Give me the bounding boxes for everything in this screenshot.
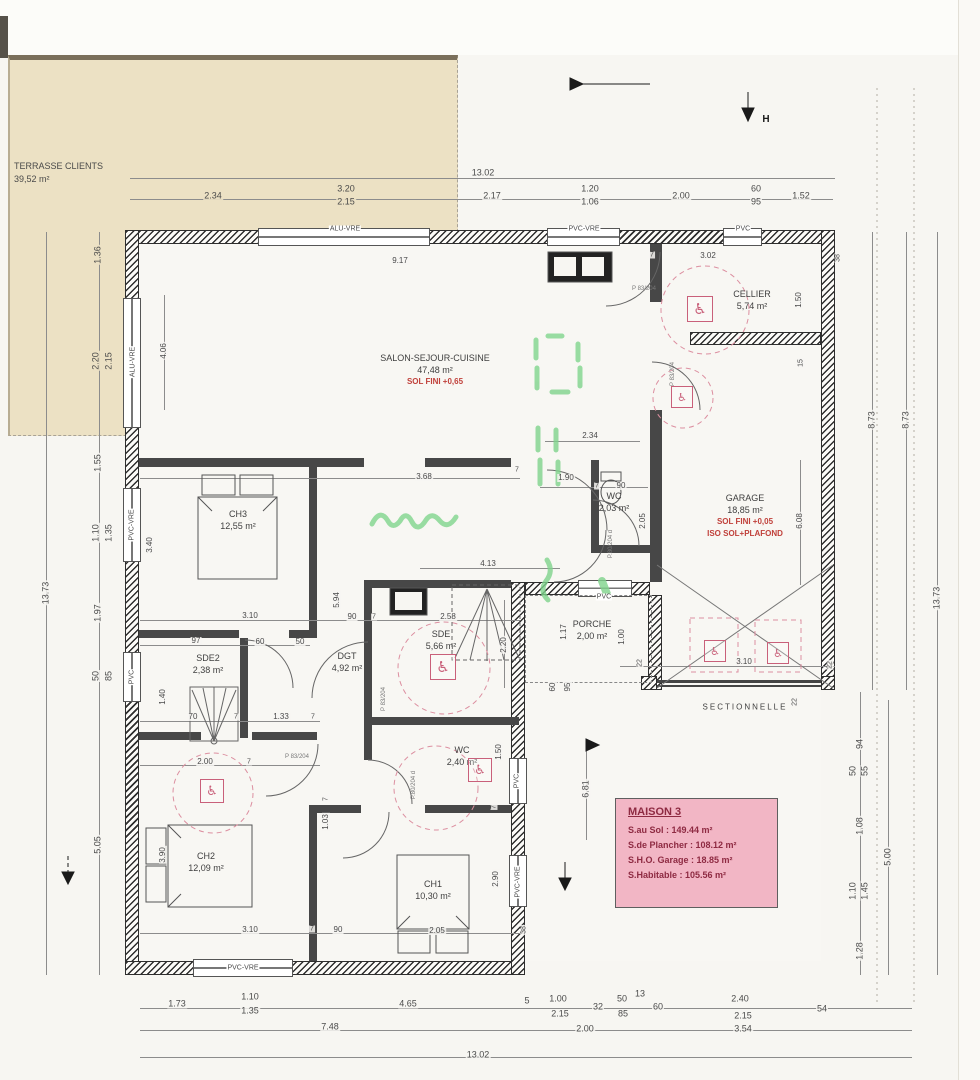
dimension-label: 4.65	[398, 1000, 418, 1009]
dimension-label: 2.05	[428, 927, 446, 935]
dimension-label: 38	[835, 253, 842, 263]
dimension-label: 1.28	[856, 941, 865, 961]
dimension-label: 3.10	[735, 658, 753, 666]
dimension-label: 2.00	[671, 192, 691, 201]
dimension-label: 3.10	[241, 926, 259, 934]
dimension-label: 95	[564, 682, 572, 693]
dimension-label: 1.40	[159, 688, 167, 706]
dimension-label: 7	[310, 714, 316, 721]
dimension-label: 7.48	[320, 1023, 340, 1032]
dimension-label: 5.00	[884, 847, 893, 867]
dimension-label: 50	[849, 765, 858, 777]
dimension-line	[620, 666, 835, 667]
wheelchair-accessibility-icon: ♿	[468, 758, 492, 782]
dimension-label: 3.68	[415, 473, 433, 481]
dimension-label: 1.35	[240, 1007, 260, 1016]
dimension-label: 97	[191, 637, 202, 645]
room-area: 2,03 m²	[599, 502, 630, 514]
window-type-label: PVC-VRE	[515, 865, 522, 898]
window-type-label: ALU-VRE	[130, 346, 137, 378]
room-note: SOL FINI +0,65	[380, 376, 490, 388]
room-name: SALON-SEJOUR-CUISINE	[380, 352, 490, 364]
window-type-label: PVC	[514, 773, 521, 789]
dimension-label: 1.55	[94, 453, 103, 473]
dimension-label: 1.33	[272, 713, 290, 721]
wheelchair-accessibility-icon: ♿	[687, 296, 713, 322]
terrace-label: TERRASSE CLIENTS 39,52 m²	[14, 160, 103, 186]
dimension-label: 50	[616, 995, 628, 1004]
dimension-label: 7	[309, 926, 315, 933]
door-reference-label: P.80/204 d	[608, 529, 614, 559]
dimension-label: 70	[188, 713, 199, 721]
room-label-ch3: CH312,55 m²	[220, 508, 256, 532]
room-label-garage: GARAGE18,85 m²SOL FINI +0,05ISO SOL+PLAF…	[707, 492, 783, 540]
dimension-label: 2.00	[196, 758, 214, 766]
room-area: 10,30 m²	[415, 890, 451, 902]
dimension-label: 4.13	[479, 560, 497, 568]
dimension-label: 1.50	[495, 743, 503, 761]
dimension-label: 54	[816, 1005, 828, 1014]
dimension-label: 90	[333, 926, 344, 934]
dimension-label: 60	[255, 638, 266, 646]
dimension-label: 22	[792, 697, 799, 707]
dimension-label: 3.90	[159, 846, 167, 864]
dimension-label: 1.03	[322, 813, 330, 831]
room-label-ch1: CH110,30 m²	[415, 878, 451, 902]
room-label-ch2: CH212,09 m²	[188, 850, 224, 874]
sectional-door-label: SECTIONNELLE	[703, 703, 788, 712]
partition-wall	[650, 410, 662, 582]
room-area: 12,55 m²	[220, 520, 256, 532]
dimension-label: 2.15	[105, 351, 114, 371]
partition-wall	[364, 725, 372, 760]
dimension-label: 2.34	[203, 192, 223, 201]
partition-wall	[364, 717, 519, 725]
dimension-label: 90	[616, 482, 627, 490]
room-name: CH3	[220, 508, 256, 520]
partition-wall	[252, 732, 317, 740]
wheelchair-accessibility-icon: ♿	[200, 779, 224, 803]
dimension-label: 1.36	[94, 245, 103, 265]
room-area: 2,38 m²	[193, 664, 224, 676]
room-name: WC	[447, 744, 478, 756]
partition-wall	[364, 580, 511, 588]
dimension-label: 1.45	[861, 881, 870, 901]
dimension-label: 7	[233, 714, 239, 721]
window-type-label: PVC	[735, 226, 751, 233]
sectional-door-line	[657, 685, 821, 687]
dimension-label: 1.97	[94, 603, 103, 623]
dimension-label: 50	[295, 638, 306, 646]
room-area: 4,92 m²	[332, 662, 363, 674]
info-box-row: S.Habitable : 105.56 m²	[628, 868, 777, 883]
dimension-label: 7	[594, 483, 600, 490]
dimension-label: 7	[371, 614, 377, 621]
scanned-floor-plan-page: TERRASSE CLIENTS 39,52 m²	[0, 0, 980, 1080]
partition-wall	[309, 805, 317, 961]
partition-wall	[139, 458, 364, 467]
dimension-line	[420, 568, 560, 569]
dimension-label: 3.02	[699, 252, 717, 260]
dimension-label: 8.73	[868, 410, 877, 430]
dimension-label: 7	[514, 467, 520, 474]
window-type-label: PVC-VRE	[567, 226, 600, 233]
wheelchair-accessibility-icon: ♿	[671, 386, 693, 408]
room-name: CELLIER	[733, 288, 771, 300]
room-name: DGT	[332, 650, 363, 662]
paper-right-edge	[958, 0, 980, 1080]
dimension-label: 85	[105, 670, 114, 682]
room-name: WC	[599, 490, 630, 502]
maison-info-box: MAISON 3 S.au Sol : 149.44 m²S.de Planch…	[615, 798, 778, 908]
dimension-label: 6.81	[582, 779, 591, 799]
dimension-label: 94	[856, 738, 865, 750]
dimension-label: 2.15	[733, 1012, 753, 1021]
dimension-label: 5.94	[333, 591, 341, 609]
dimension-label: 1.00	[618, 628, 626, 646]
window-type-label: ALU-VRE	[329, 226, 361, 233]
dimension-label: 85	[617, 1010, 629, 1019]
wall-segment	[821, 230, 835, 690]
dimension-line	[140, 1057, 912, 1058]
dimension-label: 2.34	[581, 432, 599, 440]
dimension-label: 3.10	[241, 612, 259, 620]
dimension-line	[130, 178, 835, 179]
dimension-label: 22	[637, 658, 644, 668]
dimension-label: 3.20	[336, 185, 356, 194]
partition-wall	[139, 630, 239, 638]
paper-top-strip	[0, 0, 980, 55]
dimension-line	[140, 1030, 912, 1031]
room-note: SOL FINI +0,05	[707, 516, 783, 528]
partition-wall	[364, 580, 372, 725]
dimension-label: 1.00	[548, 995, 568, 1004]
dimension-label: 1.20	[580, 185, 600, 194]
dimension-label: 60	[549, 682, 557, 693]
room-area: 18,85 m²	[707, 504, 783, 516]
dimension-label: 95	[750, 198, 762, 207]
dimension-label: 50	[92, 670, 101, 682]
wall-segment	[690, 332, 821, 345]
partition-wall	[591, 545, 658, 553]
room-label-salon: SALON-SEJOUR-CUISINE47,48 m²SOL FINI +0,…	[380, 352, 490, 388]
partition-wall	[309, 467, 317, 637]
door-reference-label: P 83/204	[670, 361, 676, 387]
dimension-line	[888, 700, 889, 975]
window-type-label: PVC-VRE	[226, 965, 259, 972]
dimension-label: 1.35	[105, 523, 114, 543]
dimension-label: 2.15	[336, 198, 356, 207]
room-area: 5,74 m²	[733, 300, 771, 312]
partition-wall	[425, 805, 511, 813]
dimension-label: 60	[652, 1003, 664, 1012]
dimension-label: 1.90	[557, 474, 575, 482]
window-type-label: PVC	[129, 669, 136, 685]
room-label-dgt: DGT4,92 m²	[332, 650, 363, 674]
partition-wall	[240, 638, 248, 738]
dimension-label: 1.10	[240, 993, 260, 1002]
dimension-label: 1.52	[791, 192, 811, 201]
dimension-label: 3.54	[733, 1025, 753, 1034]
dimension-label: 7	[323, 796, 330, 802]
room-area: 12,09 m²	[188, 862, 224, 874]
room-note: ISO SOL+PLAFOND	[707, 528, 783, 540]
terrace-name: TERRASSE CLIENTS	[14, 161, 103, 171]
dimension-line	[140, 721, 320, 722]
room-name: SDE	[426, 628, 457, 640]
dimension-label: 3.40	[146, 536, 154, 554]
dimension-label: 13.73	[933, 586, 942, 611]
dimension-label: 7	[649, 252, 655, 259]
room-label-wc1: WC2,03 m²	[599, 490, 630, 514]
partition-wall	[139, 732, 201, 740]
room-label-sde2: SDE22,38 m²	[193, 652, 224, 676]
dimension-label: 1.17	[560, 623, 568, 641]
dimension-label: 8.73	[902, 410, 911, 430]
room-label-cellier: CELLIER5,74 m²	[733, 288, 771, 312]
dimension-label: 22	[827, 660, 834, 670]
terrace-area-value: 39,52 m²	[14, 174, 50, 184]
dimension-label: 2.20	[92, 351, 101, 371]
dimension-line	[872, 232, 873, 690]
info-box-row: S.au Sol : 149.44 m²	[628, 823, 777, 838]
info-box-row: S.de Plancher : 108.12 m²	[628, 838, 777, 853]
partition-wall	[425, 458, 511, 467]
room-name: CH2	[188, 850, 224, 862]
dimension-label: 2.15	[550, 1010, 570, 1019]
info-box-row: S.H.O. Garage : 18.85 m²	[628, 853, 777, 868]
dimension-label: 7	[246, 759, 252, 766]
room-area: 2,00 m²	[573, 630, 612, 642]
dimension-label: 5	[523, 997, 530, 1006]
section-marker-letter: H	[761, 115, 770, 125]
dimension-label: 1.10	[849, 881, 858, 901]
dimension-line	[140, 765, 320, 766]
window-type-label: PVC-VRE	[129, 508, 136, 541]
dimension-label: 1.06	[580, 198, 600, 207]
door-reference-label: P 83/204	[284, 754, 310, 760]
dimension-label: 2.40	[730, 995, 750, 1004]
dimension-label: 9.17	[391, 257, 409, 265]
door-reference-label: P.80/204 d	[411, 770, 417, 800]
wall-segment	[821, 676, 835, 690]
sectional-door-line	[657, 680, 821, 683]
room-area: 47,48 m²	[380, 364, 490, 376]
dimension-label: 2.58	[439, 613, 457, 621]
dimension-label: 2.17	[482, 192, 502, 201]
dimension-label: 2.20	[500, 636, 508, 654]
wheelchair-accessibility-icon: ♿	[430, 654, 456, 680]
dimension-label: 13.02	[471, 169, 496, 178]
dimension-label: 2.05	[639, 512, 647, 530]
wheelchair-accessibility-icon: ♿	[767, 642, 789, 664]
dimension-label: 5.05	[94, 835, 103, 855]
dimension-line	[140, 645, 310, 646]
dimension-label: 1.08	[856, 816, 865, 836]
wheelchair-accessibility-icon: ♿	[704, 640, 726, 662]
dimension-label: 1.73	[167, 1000, 187, 1009]
dimension-line	[906, 232, 907, 690]
dimension-line	[545, 441, 640, 442]
partition-wall	[317, 805, 361, 813]
scan-shadow	[0, 16, 8, 58]
room-label-porche: PORCHE2,00 m²	[573, 618, 612, 642]
wall-segment	[125, 961, 525, 975]
dimension-label: 13.02	[466, 1051, 491, 1060]
info-box-title: MAISON 3	[628, 806, 777, 818]
dimension-label: 6.08	[796, 512, 804, 530]
dimension-label: 60	[750, 185, 762, 194]
dimension-label: 7	[491, 804, 498, 810]
room-label-sde: SDE5,66 m²	[426, 628, 457, 652]
dimension-label: 2.00	[575, 1025, 595, 1034]
dimension-label: 90	[347, 613, 358, 621]
dimension-label: 2.90	[492, 870, 500, 888]
dimension-label: 1.10	[92, 523, 101, 543]
door-reference-label: P 83/204	[631, 286, 657, 292]
dimension-label: 13	[634, 990, 646, 999]
door-reference-label: P 83/204	[381, 686, 387, 712]
dimension-label: 1.50	[795, 291, 803, 309]
room-name: SDE2	[193, 652, 224, 664]
room-name: GARAGE	[707, 492, 783, 504]
room-name: CH1	[415, 878, 451, 890]
dimension-label: 55	[861, 765, 870, 777]
dimension-label: 38	[521, 925, 528, 935]
room-name: PORCHE	[573, 618, 612, 630]
dimension-line	[140, 478, 520, 479]
dimension-label: 32	[592, 1003, 604, 1012]
dimension-line	[140, 620, 520, 621]
dimension-label: 4.06	[160, 342, 168, 360]
room-area: 5,66 m²	[426, 640, 457, 652]
dimension-label: 15	[798, 358, 805, 368]
info-box-rows: S.au Sol : 149.44 m²S.de Plancher : 108.…	[628, 823, 777, 883]
dimension-label: 13.73	[42, 581, 51, 606]
window-type-label: PVC	[596, 594, 612, 601]
